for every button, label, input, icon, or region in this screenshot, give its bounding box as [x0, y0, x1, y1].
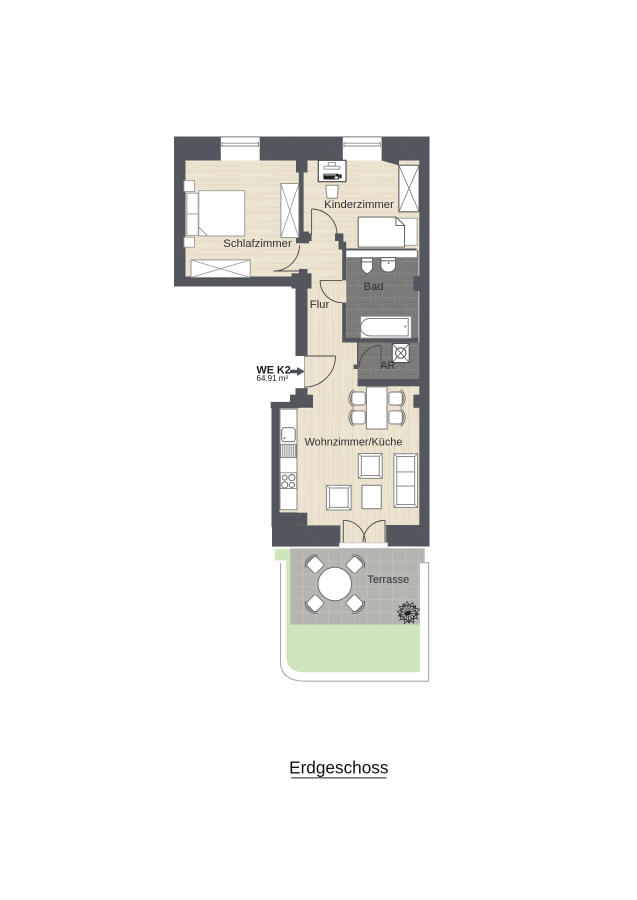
svg-text:Wohnzimmer/Küche: Wohnzimmer/Küche: [305, 436, 403, 448]
svg-text:64.91 m²: 64.91 m²: [257, 374, 289, 383]
svg-text:Bad: Bad: [363, 281, 383, 293]
svg-text:Terrasse: Terrasse: [367, 574, 409, 586]
svg-text:Erdgeschoss: Erdgeschoss: [289, 758, 388, 778]
svg-text:Kinderzimmer: Kinderzimmer: [324, 199, 394, 211]
svg-text:Schlafzimmer: Schlafzimmer: [223, 238, 292, 250]
svg-text:AR: AR: [380, 360, 395, 372]
svg-text:Flur: Flur: [310, 299, 330, 311]
